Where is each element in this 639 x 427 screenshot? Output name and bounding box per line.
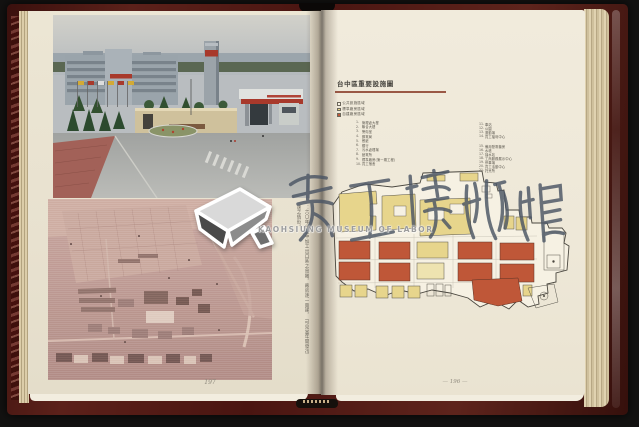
- map-title: 台中區重要設施圖: [337, 78, 394, 88]
- zone-site-map: [332, 170, 585, 333]
- facilities-list-col1: 1.管理處大樓 2.聯合大樓 3.警衛室 4.郵電局 5.餐廳 6.銀行 7.污…: [356, 120, 395, 166]
- page-bottom-edge-left: [30, 393, 308, 401]
- binding-stitches: [303, 400, 331, 403]
- page-number-left: 197: [196, 379, 224, 386]
- list-item: 14.員工福利中心: [479, 134, 505, 138]
- book-scan: ：六〇年代台中加工出口區之鳥瞰，廠房逐一興建， 可見當年開發迅速之情形。 197…: [0, 0, 639, 427]
- facilities-list-col2b: 15.備用發電機房 16.水塔 17.抽水站 18.工商服務展示中心 19.停車…: [479, 144, 512, 172]
- map-legend: 公共設施區域 標準廠房區域 自建廠房區域: [337, 101, 365, 118]
- factory-entrance-illustration: [53, 15, 310, 198]
- legend-item-own: 自建廠房區域: [337, 112, 365, 118]
- page-stack-right: [584, 9, 609, 407]
- page-number-right: — 196 —: [423, 379, 487, 385]
- facilities-list-col2a: 11.車站 12.公園 13.運動場 14.員工福利中心: [479, 122, 505, 138]
- list-item: 10.員工宿舍: [356, 161, 395, 166]
- book-gutter-shadow: [306, 10, 338, 395]
- aerial-illustration: [48, 199, 272, 380]
- aerial-construction-photo: [48, 199, 272, 380]
- title-underline: [335, 91, 446, 93]
- legend-label-own: 自建廠房區域: [342, 112, 365, 117]
- factory-entrance-photo: [53, 15, 310, 198]
- legend-label-public: 公共設施區域: [342, 101, 365, 106]
- cover-plastic-glare: [612, 10, 620, 408]
- calligraphy-text: 勞工博物館: [0, 0, 1, 1]
